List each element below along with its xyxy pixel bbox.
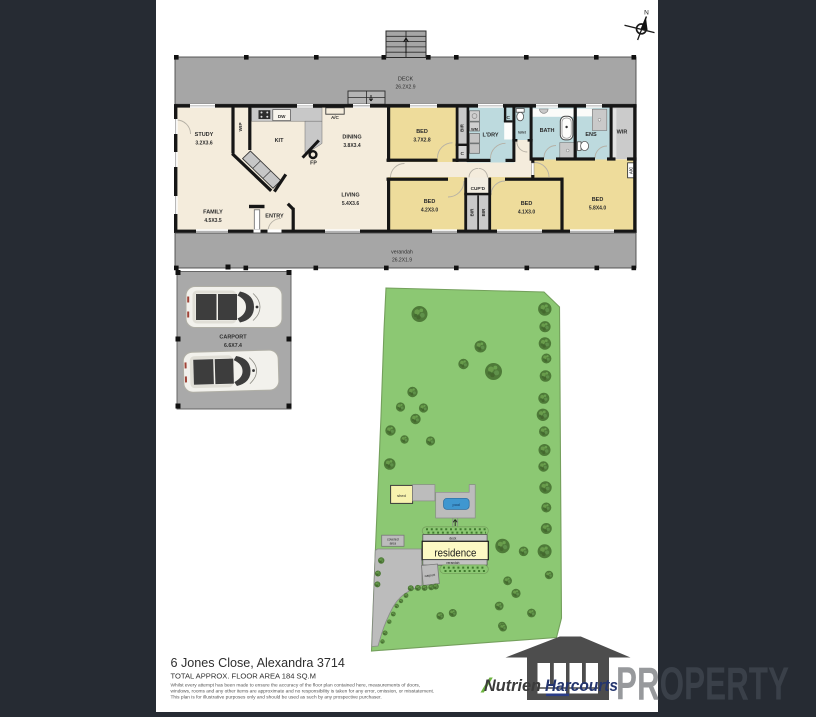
svg-text:26.2X2.9: 26.2X2.9: [395, 85, 415, 91]
svg-text:WIP: WIP: [238, 122, 244, 132]
svg-text:area: area: [390, 541, 397, 545]
svg-text:4.1X3.0: 4.1X3.0: [518, 210, 535, 216]
svg-text:STUDY: STUDY: [195, 132, 214, 138]
svg-text:Harcourts: Harcourts: [545, 676, 618, 695]
svg-text:L'DRY: L'DRY: [482, 133, 498, 139]
svg-text:CUP'D: CUP'D: [471, 186, 486, 191]
svg-text:BED: BED: [592, 197, 604, 203]
svg-text:BIR: BIR: [460, 123, 465, 132]
svg-text:WM: WM: [471, 128, 478, 132]
svg-text:Nutrien: Nutrien: [484, 677, 541, 695]
svg-text:toilet: toilet: [518, 131, 527, 135]
svg-text:C: C: [506, 115, 510, 121]
svg-text:N: N: [644, 10, 649, 17]
svg-text:3.8X3.4: 3.8X3.4: [343, 143, 360, 149]
svg-text:Whilst every attempt has been: Whilst every attempt has been made to en…: [171, 683, 421, 689]
svg-text:5.4X3.6: 5.4X3.6: [342, 201, 359, 207]
svg-text:A/C: A/C: [331, 115, 340, 120]
svg-text:verandah: verandah: [391, 250, 413, 256]
svg-text:DECK: DECK: [398, 77, 414, 83]
svg-text:CARPORT: CARPORT: [219, 335, 247, 341]
svg-text:shed: shed: [397, 493, 406, 498]
svg-text:FP: FP: [310, 161, 317, 167]
svg-text:WIR: WIR: [617, 130, 628, 136]
svg-text:4.5X3.5: 4.5X3.5: [204, 218, 221, 224]
svg-text:6.6X7.4: 6.6X7.4: [224, 343, 242, 349]
svg-text:3.2X3.6: 3.2X3.6: [195, 141, 212, 147]
svg-text:pool: pool: [453, 502, 461, 507]
svg-text:BIR: BIR: [469, 208, 474, 217]
svg-text:BATH: BATH: [540, 128, 555, 134]
svg-text:FAMILY: FAMILY: [203, 210, 223, 216]
svg-text:windows, rooms and any other i: windows, rooms and any other items are a…: [171, 689, 435, 695]
svg-text:residence: residence: [434, 548, 476, 560]
svg-text:LIVING: LIVING: [341, 193, 359, 199]
svg-text:BED: BED: [521, 201, 533, 207]
svg-text:deck: deck: [449, 537, 456, 541]
svg-text:5.8X4.0: 5.8X4.0: [589, 206, 606, 212]
svg-text:DW: DW: [278, 114, 286, 119]
svg-text:4.2X3.0: 4.2X3.0: [421, 208, 438, 214]
svg-text:ENTRY: ENTRY: [265, 214, 284, 220]
svg-text:ENS: ENS: [585, 132, 597, 138]
svg-text:A/C: A/C: [628, 167, 633, 174]
svg-text:BIR: BIR: [481, 208, 486, 217]
svg-text:verandah: verandah: [446, 561, 460, 565]
svg-text:KIT: KIT: [275, 138, 285, 144]
svg-text:C: C: [460, 151, 464, 157]
svg-text:BED: BED: [424, 199, 436, 205]
svg-text:BED: BED: [416, 129, 428, 135]
svg-text:26.2X1.9: 26.2X1.9: [392, 258, 412, 264]
svg-text:TOTAL APPROX. FLOOR AREA 184 S: TOTAL APPROX. FLOOR AREA 184 SQ.M: [171, 672, 316, 681]
svg-text:DINING: DINING: [342, 135, 361, 141]
svg-text:6 Jones Close, Alexandra 3714: 6 Jones Close, Alexandra 3714: [171, 656, 345, 670]
svg-text:3.7X2.8: 3.7X2.8: [413, 138, 430, 144]
svg-text:This plan is for illustrative: This plan is for illustrative purposes o…: [171, 695, 382, 701]
